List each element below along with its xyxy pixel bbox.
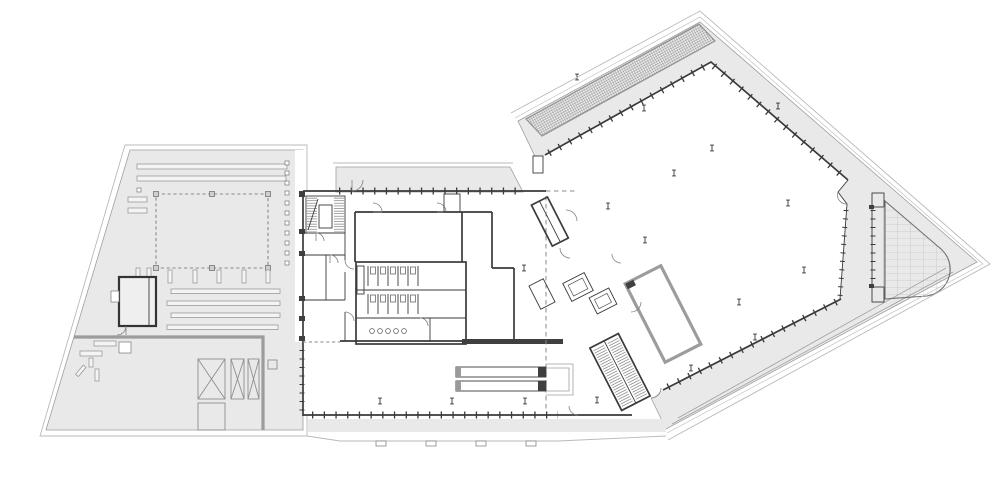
roof-strip-3 [171, 289, 280, 294]
south-outer-line [307, 436, 666, 441]
east-hall-wing [518, 22, 977, 429]
north-terrace-band [336, 167, 523, 192]
south-canopy-ticks [376, 441, 536, 446]
south-dark-bar [462, 339, 563, 344]
roof-strip-6 [167, 325, 278, 330]
pad-a [137, 188, 141, 192]
floor-plan-canvas [0, 0, 1000, 490]
service-room-annex [111, 291, 119, 302]
short-strip-2 [128, 208, 147, 213]
west-terrace-zone [40, 145, 307, 436]
restroom-block [356, 262, 466, 344]
roof-strip-4 [167, 301, 280, 306]
floor-plan-page [0, 0, 1000, 490]
roof-strip-1 [137, 164, 287, 169]
south-terrace-band [308, 419, 666, 432]
roof-strip-2 [137, 176, 286, 181]
nw-corner-stair [533, 156, 543, 173]
roof-strip-5 [171, 313, 280, 318]
terrace-jamb-n [869, 205, 874, 209]
terrace-jamb-s [869, 284, 874, 288]
short-strip-1 [128, 197, 147, 202]
service-room [119, 277, 156, 326]
